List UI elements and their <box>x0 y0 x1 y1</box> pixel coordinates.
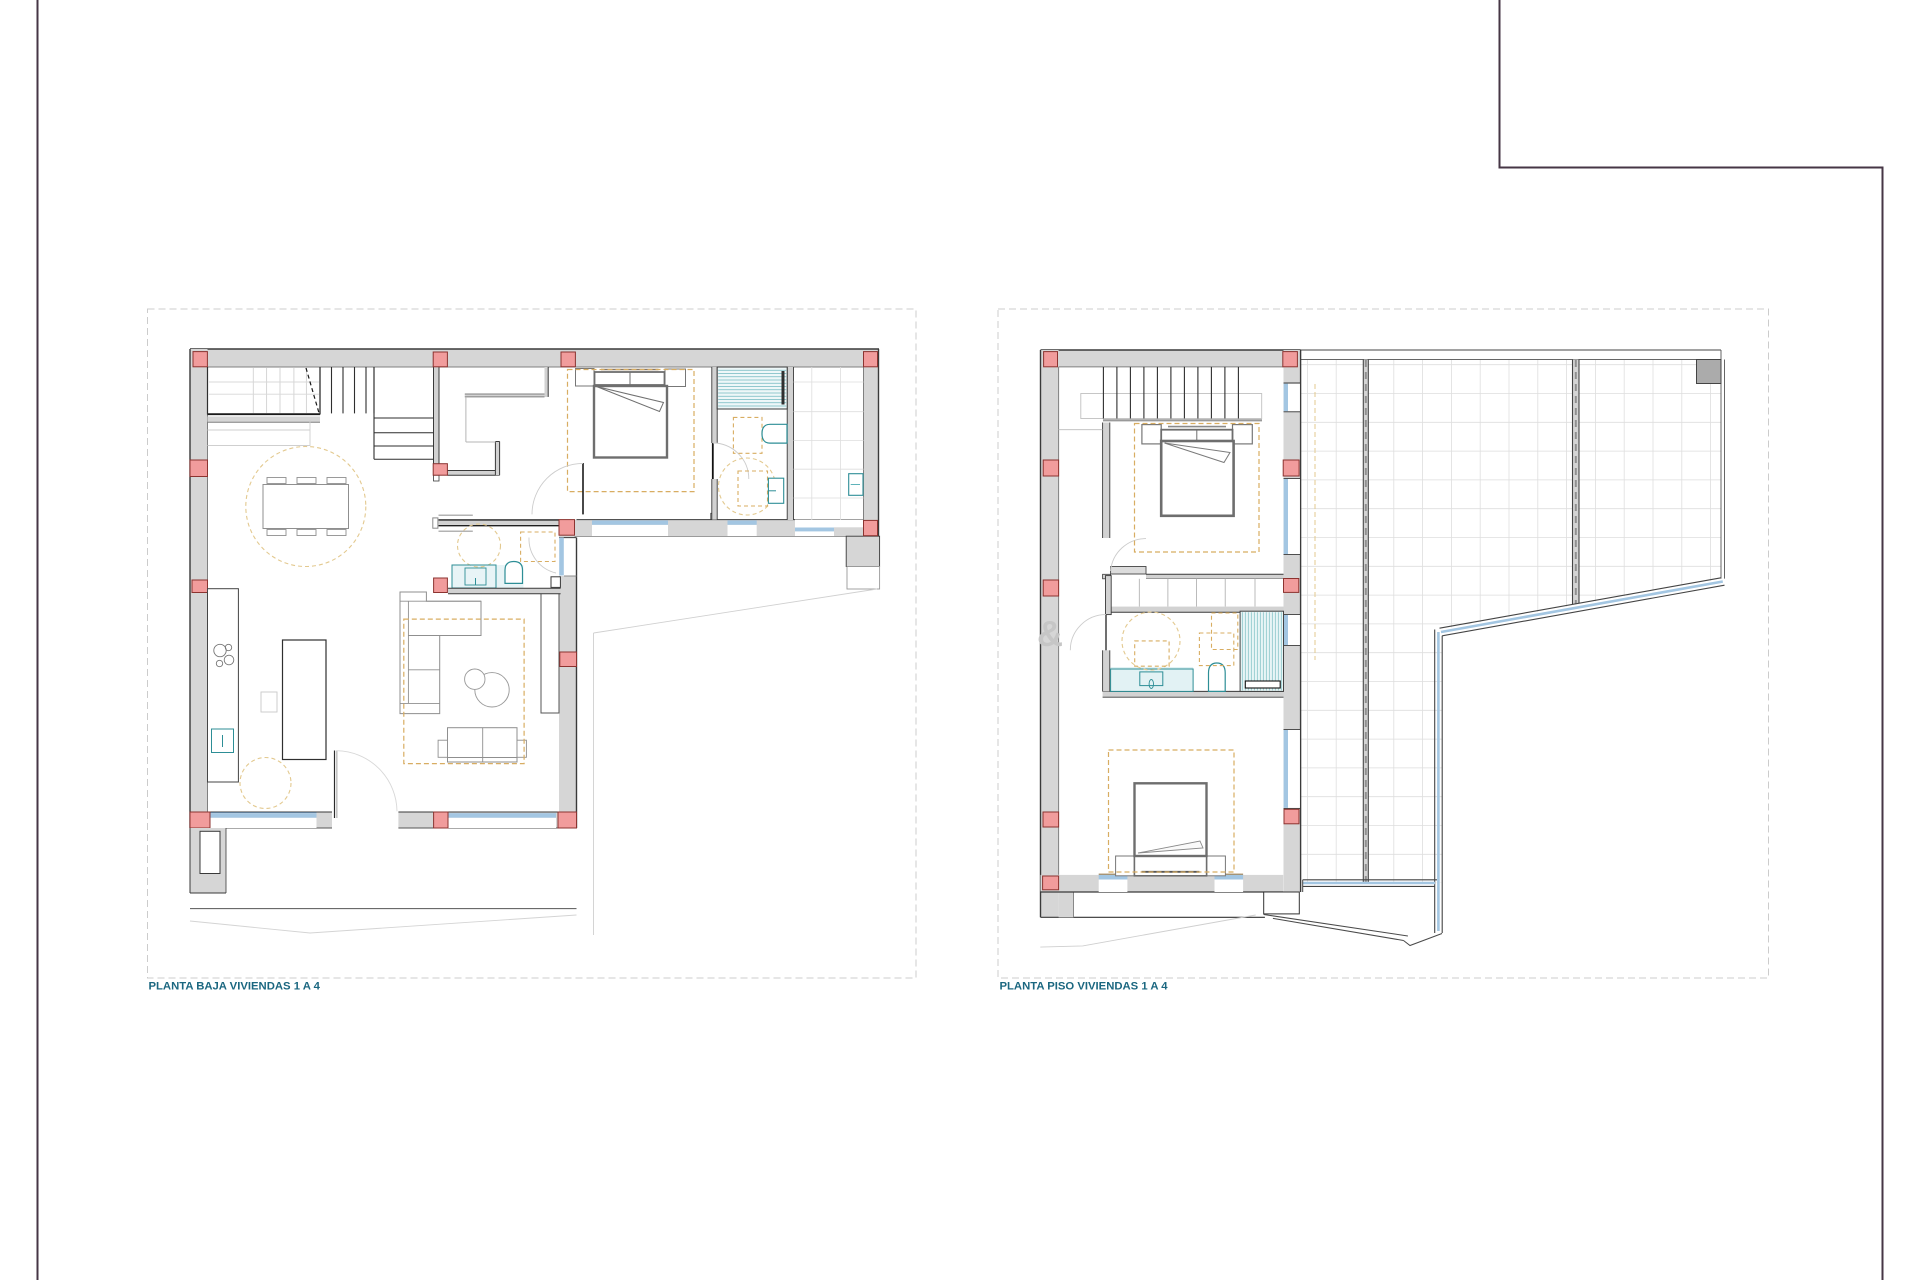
svg-text:PLANTA PISO VIVIENDAS 1 A 4: PLANTA PISO VIVIENDAS 1 A 4 <box>1000 980 1169 992</box>
svg-text:PLANTA BAJA VIVIENDAS 1 A 4: PLANTA BAJA VIVIENDAS 1 A 4 <box>149 980 321 992</box>
svg-text:&: & <box>1037 613 1063 654</box>
